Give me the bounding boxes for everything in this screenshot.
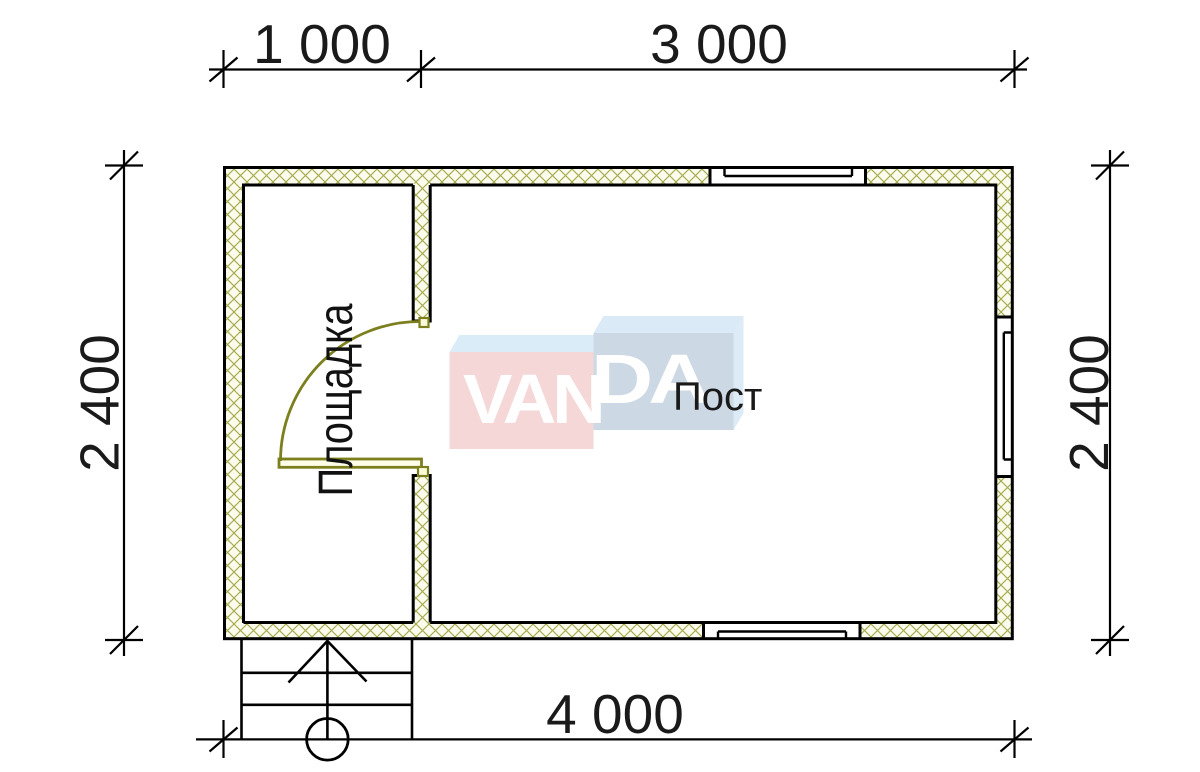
svg-text:2 400: 2 400 [69, 334, 131, 472]
svg-text:4 000: 4 000 [546, 683, 684, 745]
svg-text:Пост: Пост [673, 375, 762, 419]
svg-text:2 400: 2 400 [1058, 334, 1120, 472]
svg-text:3 000: 3 000 [650, 13, 788, 75]
svg-text:1 000: 1 000 [253, 13, 391, 75]
svg-text:VAN: VAN [463, 361, 601, 439]
svg-text:Площадка: Площадка [310, 303, 363, 496]
